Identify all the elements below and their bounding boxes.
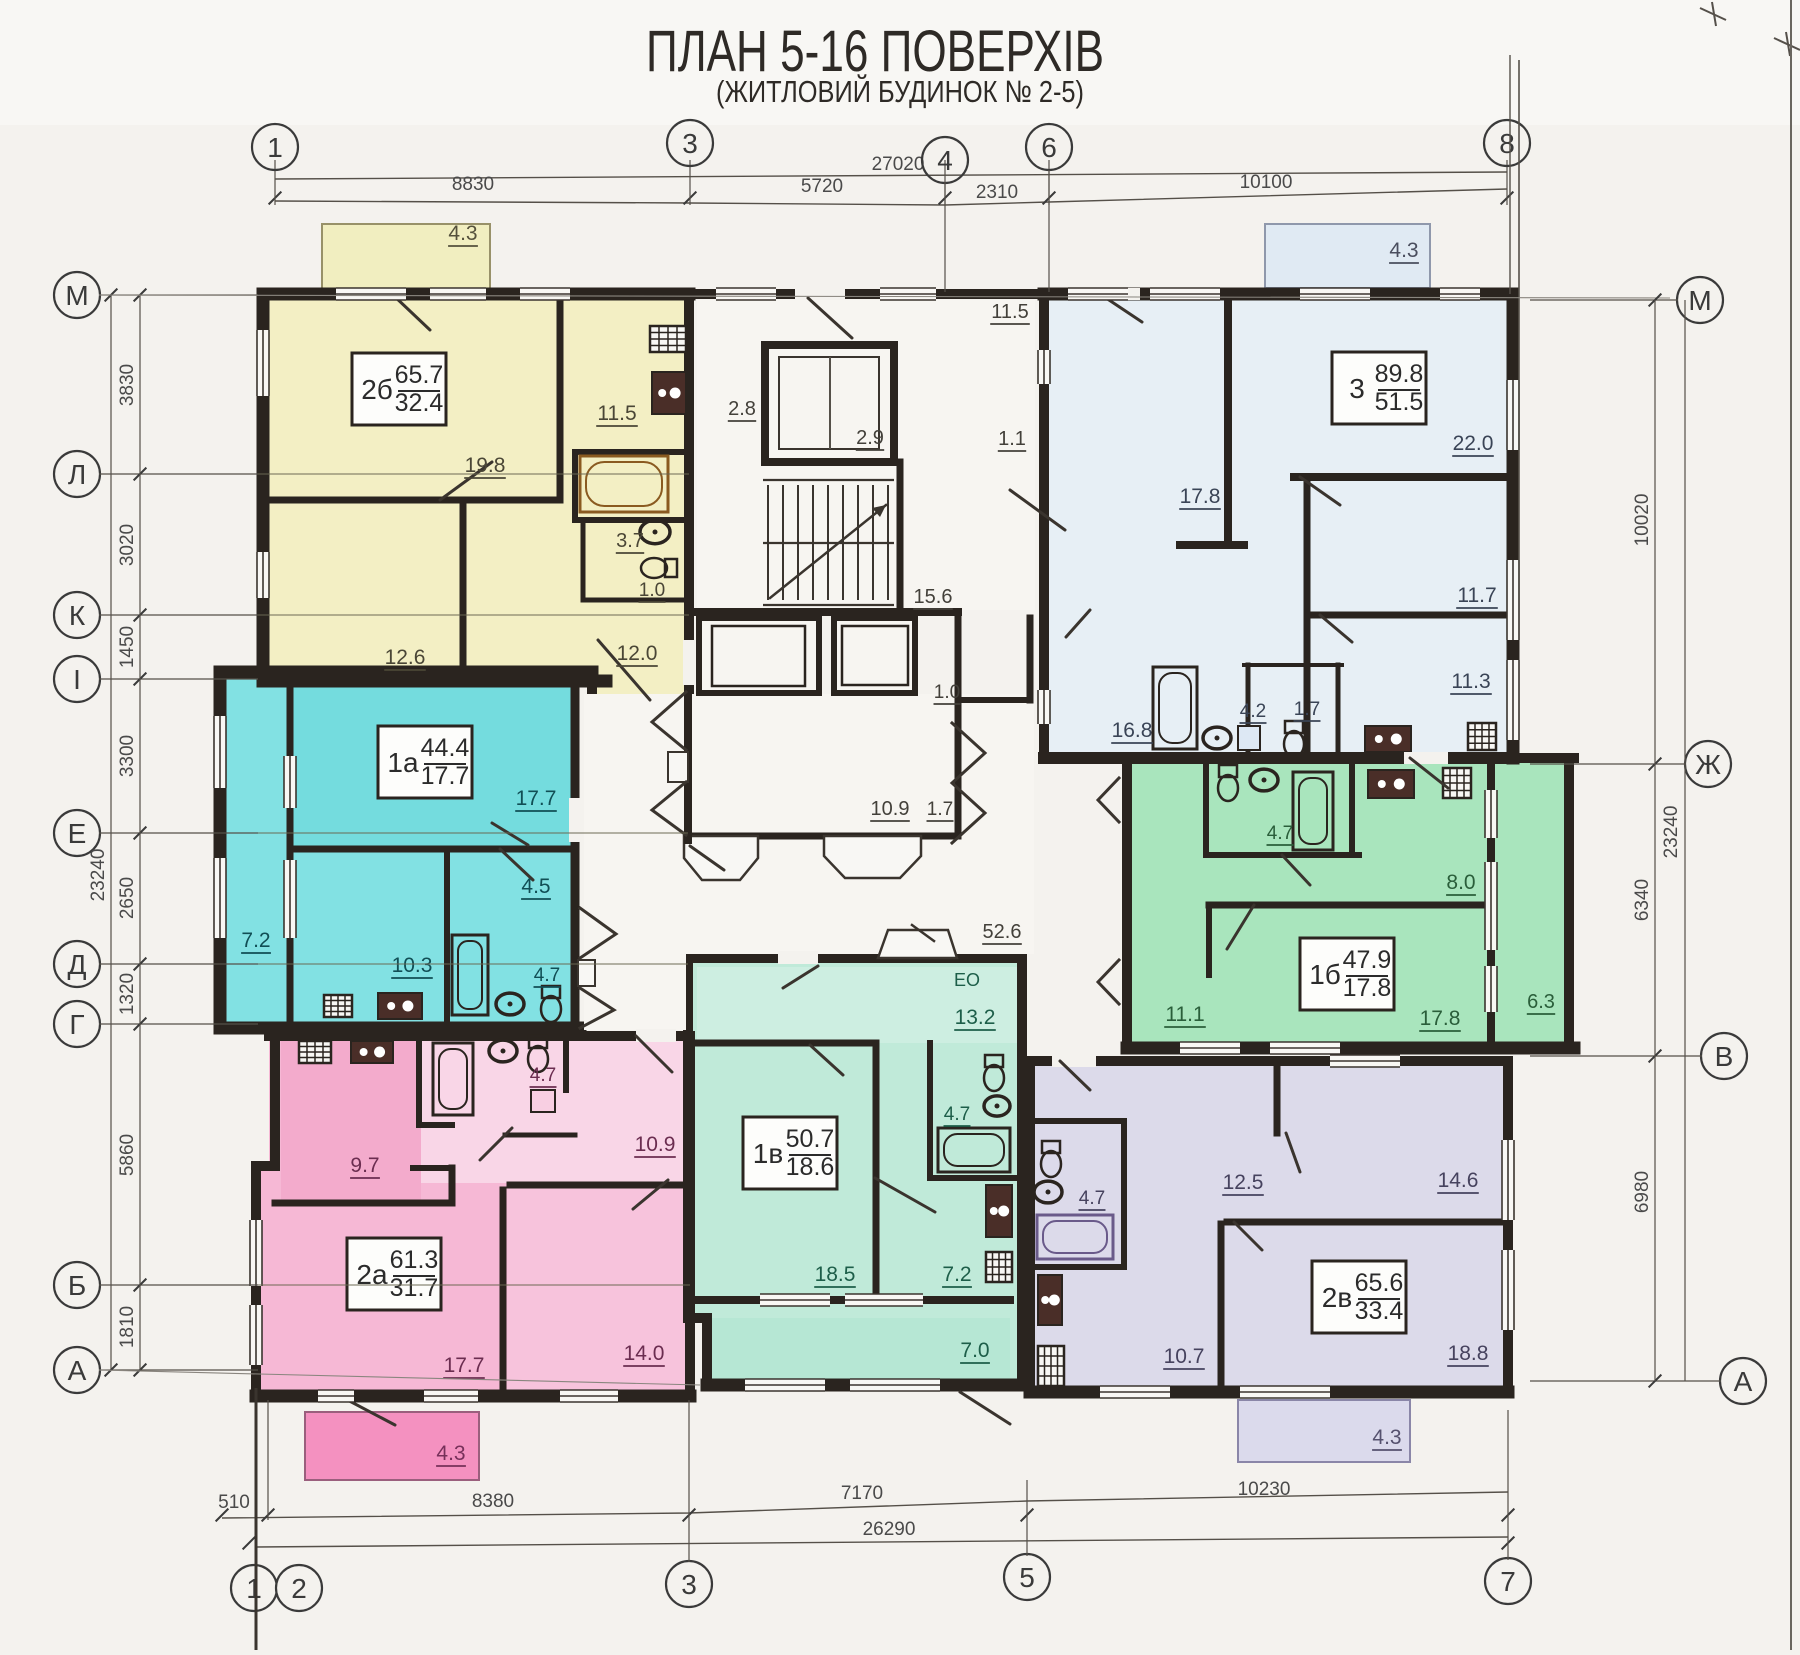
svg-text:26290: 26290 xyxy=(863,1519,916,1540)
svg-text:М: М xyxy=(1688,285,1711,316)
svg-text:Л: Л xyxy=(68,459,86,490)
svg-text:7170: 7170 xyxy=(841,1483,883,1504)
svg-text:1.7: 1.7 xyxy=(927,799,953,820)
svg-text:13.2: 13.2 xyxy=(955,1006,996,1029)
svg-text:18.6: 18.6 xyxy=(786,1153,835,1181)
svg-text:44.4: 44.4 xyxy=(421,734,470,762)
svg-text:2310: 2310 xyxy=(976,182,1018,203)
svg-text:11.1: 11.1 xyxy=(1165,1003,1204,1026)
svg-text:23240: 23240 xyxy=(1661,806,1682,859)
svg-text:11.3: 11.3 xyxy=(1451,670,1490,693)
svg-text:А: А xyxy=(68,1355,87,1386)
svg-text:Ж: Ж xyxy=(1695,749,1721,780)
svg-text:3: 3 xyxy=(681,1569,697,1600)
svg-text:10.7: 10.7 xyxy=(1164,1345,1205,1368)
svg-text:14.6: 14.6 xyxy=(1438,1169,1479,1192)
svg-text:К: К xyxy=(69,600,86,631)
svg-text:47.9: 47.9 xyxy=(1343,946,1392,974)
svg-text:89.8: 89.8 xyxy=(1375,360,1424,388)
svg-text:10100: 10100 xyxy=(1240,172,1293,193)
svg-text:10230: 10230 xyxy=(1238,1479,1291,1500)
svg-text:1в: 1в xyxy=(753,1138,783,1169)
svg-text:3830: 3830 xyxy=(117,364,138,406)
svg-text:31.7: 31.7 xyxy=(390,1274,439,1302)
svg-text:33.4: 33.4 xyxy=(1355,1297,1404,1325)
svg-text:Е: Е xyxy=(68,818,87,849)
svg-text:1: 1 xyxy=(267,132,283,163)
svg-text:1810: 1810 xyxy=(117,1306,138,1348)
svg-text:27020: 27020 xyxy=(872,154,925,175)
svg-text:4.7: 4.7 xyxy=(1079,1188,1105,1209)
svg-text:4.7: 4.7 xyxy=(534,965,560,986)
svg-text:52.6: 52.6 xyxy=(983,921,1022,943)
svg-text:11.7: 11.7 xyxy=(1457,584,1496,607)
svg-text:11.5: 11.5 xyxy=(597,402,636,425)
svg-text:4.2: 4.2 xyxy=(1240,701,1266,722)
svg-text:65.7: 65.7 xyxy=(395,361,444,389)
svg-text:1.7: 1.7 xyxy=(1294,699,1320,720)
svg-text:9.7: 9.7 xyxy=(350,1154,379,1177)
svg-text:12.6: 12.6 xyxy=(385,646,426,669)
svg-text:18.5: 18.5 xyxy=(815,1263,856,1286)
svg-text:11.5: 11.5 xyxy=(991,301,1028,323)
svg-text:1450: 1450 xyxy=(117,626,138,668)
svg-text:7.2: 7.2 xyxy=(241,929,270,952)
svg-text:3020: 3020 xyxy=(117,524,138,566)
svg-text:4.3: 4.3 xyxy=(436,1442,465,1465)
svg-text:6.3: 6.3 xyxy=(1527,991,1555,1013)
svg-text:3300: 3300 xyxy=(117,735,138,777)
svg-text:17.8: 17.8 xyxy=(1420,1007,1461,1030)
svg-text:В: В xyxy=(1715,1041,1734,1072)
svg-text:7.0: 7.0 xyxy=(960,1339,989,1362)
svg-text:3: 3 xyxy=(1349,373,1365,404)
svg-text:17.7: 17.7 xyxy=(444,1354,485,1377)
svg-text:10.3: 10.3 xyxy=(392,954,433,977)
svg-text:2в: 2в xyxy=(1322,1282,1352,1313)
svg-text:17.8: 17.8 xyxy=(1180,485,1221,508)
svg-text:1: 1 xyxy=(246,1573,262,1604)
svg-text:5: 5 xyxy=(1019,1562,1035,1593)
svg-text:4.7: 4.7 xyxy=(1267,823,1293,844)
svg-text:5860: 5860 xyxy=(117,1134,138,1176)
svg-text:4.5: 4.5 xyxy=(521,875,550,898)
svg-text:Д: Д xyxy=(68,949,87,980)
svg-text:5720: 5720 xyxy=(801,176,843,197)
svg-text:2: 2 xyxy=(291,1573,307,1604)
svg-text:4.7: 4.7 xyxy=(530,1065,556,1086)
svg-text:8830: 8830 xyxy=(452,174,494,195)
svg-text:6980: 6980 xyxy=(1632,1171,1653,1213)
svg-text:7: 7 xyxy=(1500,1566,1516,1597)
svg-text:51.5: 51.5 xyxy=(1375,388,1424,416)
svg-text:1б: 1б xyxy=(1309,959,1341,990)
svg-text:32.4: 32.4 xyxy=(395,389,444,417)
svg-text:10020: 10020 xyxy=(1632,494,1653,547)
svg-text:(ЖИТЛОВИЙ БУДИНОК № 2-5): (ЖИТЛОВИЙ БУДИНОК № 2-5) xyxy=(716,73,1084,109)
svg-text:22.0: 22.0 xyxy=(1453,432,1494,455)
svg-text:50.7: 50.7 xyxy=(786,1125,835,1153)
svg-text:8: 8 xyxy=(1499,128,1515,159)
svg-text:510: 510 xyxy=(218,1492,250,1513)
svg-text:4.7: 4.7 xyxy=(944,1104,970,1125)
svg-text:2650: 2650 xyxy=(117,877,138,919)
svg-text:М: М xyxy=(65,280,88,311)
svg-text:17.7: 17.7 xyxy=(421,762,470,790)
svg-text:14.0: 14.0 xyxy=(624,1342,665,1365)
svg-text:10.9: 10.9 xyxy=(871,798,910,820)
svg-text:4: 4 xyxy=(937,145,953,176)
svg-text:1320: 1320 xyxy=(117,973,138,1015)
svg-text:16.8: 16.8 xyxy=(1112,719,1153,742)
svg-text:1а: 1а xyxy=(387,747,419,778)
svg-text:4.3: 4.3 xyxy=(1389,239,1418,262)
svg-text:1.1: 1.1 xyxy=(998,428,1026,450)
svg-text:8.0: 8.0 xyxy=(1446,871,1475,894)
svg-text:7.2: 7.2 xyxy=(942,1263,971,1286)
svg-text:4.3: 4.3 xyxy=(448,222,477,245)
svg-text:2б: 2б xyxy=(361,374,393,405)
svg-text:6340: 6340 xyxy=(1632,879,1653,921)
svg-text:17.7: 17.7 xyxy=(516,787,557,810)
svg-text:2.9: 2.9 xyxy=(856,427,884,449)
svg-text:65.6: 65.6 xyxy=(1355,1269,1404,1297)
svg-text:ЕО: ЕО xyxy=(954,970,980,990)
svg-text:3.7: 3.7 xyxy=(616,530,644,552)
svg-text:А: А xyxy=(1734,1366,1753,1397)
svg-text:61.3: 61.3 xyxy=(390,1246,439,1274)
svg-text:1.0: 1.0 xyxy=(934,682,960,703)
svg-text:18.8: 18.8 xyxy=(1448,1342,1489,1365)
svg-text:3: 3 xyxy=(682,128,698,159)
svg-text:1.0: 1.0 xyxy=(639,580,665,601)
svg-text:8380: 8380 xyxy=(472,1491,514,1512)
svg-text:2.8: 2.8 xyxy=(728,398,756,420)
svg-text:І: І xyxy=(73,664,81,695)
svg-text:12.0: 12.0 xyxy=(617,642,658,665)
svg-text:15.6: 15.6 xyxy=(914,586,953,608)
svg-text:Г: Г xyxy=(69,1009,84,1040)
svg-text:Б: Б xyxy=(68,1270,86,1301)
svg-text:10.9: 10.9 xyxy=(635,1133,676,1156)
svg-text:17.8: 17.8 xyxy=(1343,974,1392,1002)
svg-text:23240: 23240 xyxy=(88,849,109,902)
svg-text:12.5: 12.5 xyxy=(1223,1171,1264,1194)
svg-text:6: 6 xyxy=(1041,132,1057,163)
svg-text:4.3: 4.3 xyxy=(1372,1426,1401,1449)
